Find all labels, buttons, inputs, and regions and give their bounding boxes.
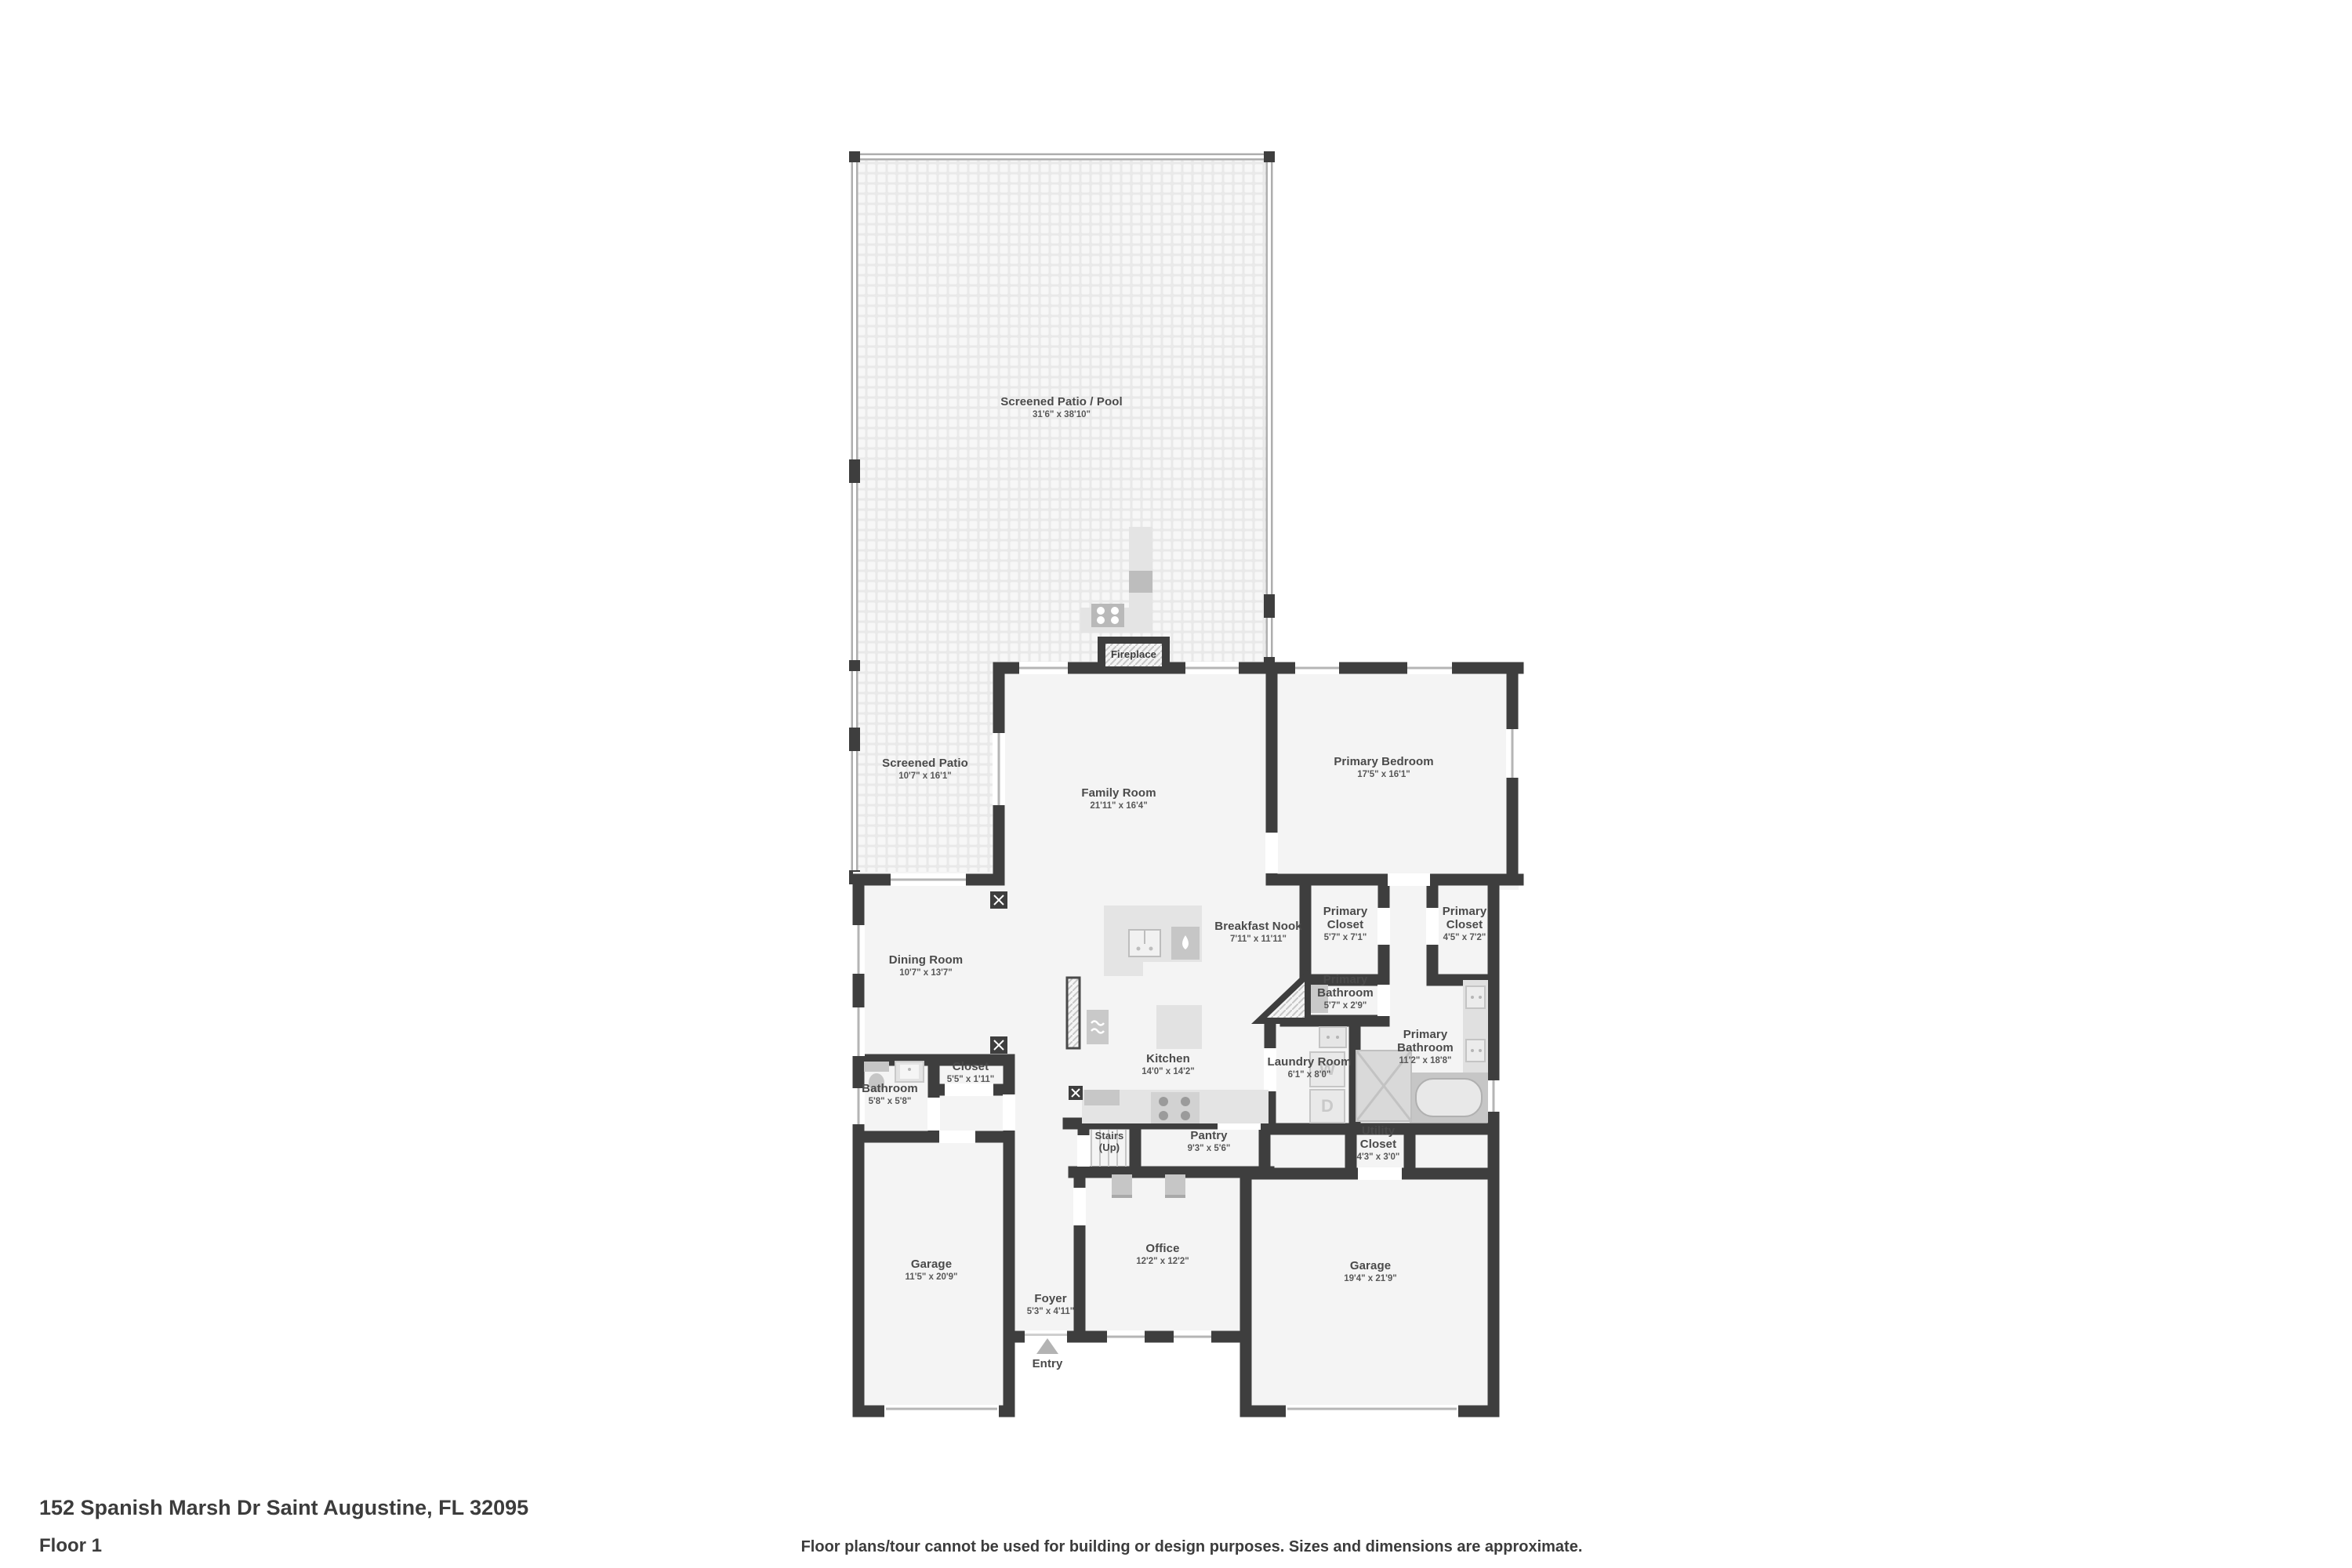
room-label-screened-patio-pool: Screened Patio / Pool 31'6" x 38'10": [1000, 395, 1122, 420]
room-label-garage-right: Garage 19'4" x 21'9": [1344, 1259, 1397, 1284]
floor-plan-drawing: [0, 0, 2352, 1568]
room-label-garage-left: Garage 11'5" x 20'9": [906, 1258, 958, 1283]
toilet-icon: [864, 1062, 889, 1072]
disclaimer-text: Floor plans/tour cannot be used for buil…: [800, 1538, 1584, 1556]
room-label-kitchen: Kitchen 14'0" x 14'2": [1142, 1052, 1195, 1077]
room-label-laundry-room: Laundry Room 6'1" x 8'0": [1267, 1055, 1351, 1080]
cabinet-icon: [1067, 978, 1080, 1048]
room-label-primary-bedroom: Primary Bedroom 17'5" x 16'1": [1334, 755, 1433, 780]
fireplace-label: Fireplace: [1111, 648, 1156, 660]
room-label-closet: Closet 5'5" x 1'11": [947, 1060, 995, 1085]
room-label-breakfast-nook: Breakfast Nook 7'11" x 11'11": [1214, 920, 1301, 945]
stairs-label: Stairs (Up): [1095, 1130, 1124, 1153]
dryer-label: D: [1321, 1096, 1334, 1116]
bathtub-icon: [1416, 1079, 1482, 1116]
floor-label: Floor 1: [39, 1535, 102, 1557]
stove-icon: [1151, 1092, 1200, 1123]
entry-label: Entry: [1033, 1357, 1063, 1370]
kitchen-island: [1156, 1005, 1202, 1049]
sink-icon: [1466, 986, 1485, 1008]
address-title: 152 Spanish Marsh Dr Saint Augustine, FL…: [39, 1496, 528, 1520]
sink-icon: [1466, 1040, 1485, 1062]
room-label-primary-closet-left: Primary Closet 5'7" x 7'1": [1314, 905, 1377, 943]
room-label-utility-closet: Utility Closet 4'3" x 3'0": [1351, 1124, 1406, 1163]
refrigerator-icon: [1087, 1010, 1109, 1044]
laundry-sink-icon: [1319, 1027, 1346, 1047]
room-label-pantry: Pantry 9'3" x 5'6": [1188, 1129, 1231, 1154]
room-label-primary-bathroom: Primary Bathroom 11'2" x 18'8": [1386, 1028, 1465, 1066]
room-label-dining-room: Dining Room 10'7" x 13'7": [889, 953, 963, 978]
room-label-primary-closet-right: Primary Closet 4'5" x 7'2": [1433, 905, 1496, 943]
room-label-foyer: Foyer 5'3" x 4'11": [1027, 1292, 1075, 1317]
room-label-screened-patio: Screened Patio 10'7" x 16'1": [882, 757, 968, 782]
room-label-primary-bathroom-wc: Primary Bathroom 5'7" x 2'9": [1308, 973, 1383, 1011]
room-label-bathroom: Bathroom 5'8" x 5'8": [862, 1082, 918, 1107]
floor-plan-page: Screened Patio / Pool 31'6" x 38'10" Scr…: [0, 0, 2352, 1568]
room-label-office: Office 12'2" x 12'2": [1136, 1242, 1189, 1267]
room-label-family-room: Family Room 21'11" x 16'4": [1081, 786, 1156, 811]
